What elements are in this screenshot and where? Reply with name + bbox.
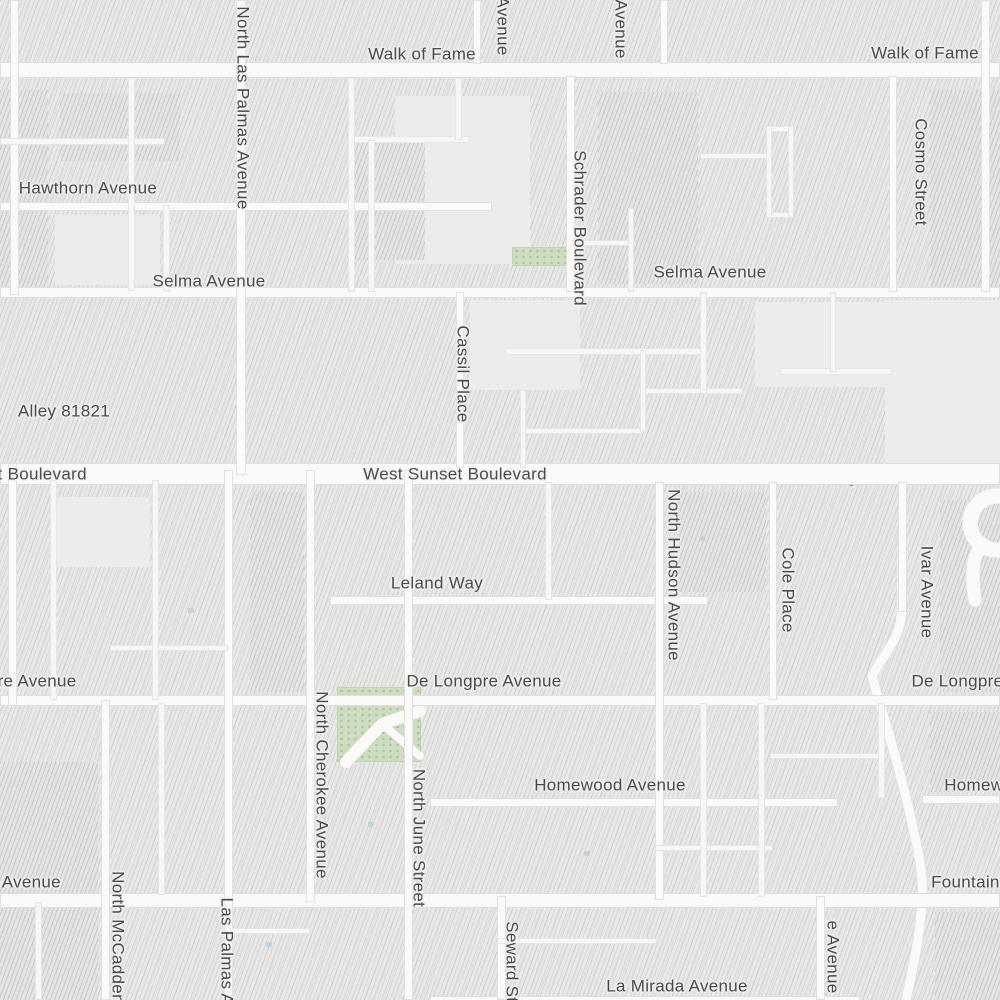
street-label-west-sunset-boulevard: West Sunset Boulevard (363, 466, 547, 483)
minor-road (230, 928, 310, 934)
street-label-selma-avenue-west: Selma Avenue (153, 273, 266, 290)
road-la-mirada-avenue (430, 996, 860, 1000)
minor-road (878, 703, 885, 798)
street-label-de-longpre-avenue-west-clipped: De Longpre Avenue (0, 673, 77, 690)
street-label-la-mirada-avenue: La Mirada Avenue (606, 978, 748, 995)
minor-road (110, 645, 228, 651)
road-avenue-partial-2 (660, 0, 668, 64)
swimming-pool (368, 822, 373, 827)
street-label-north-june-street: North June Street (411, 769, 428, 907)
minor-road (348, 78, 355, 292)
road-homewood-avenue (430, 798, 838, 807)
road-cul-de-sac-loop (970, 496, 1000, 550)
road-walk-of-fame (0, 62, 1000, 78)
street-label-de-longpre-avenue-east-clipped: De Longpre Avenue (911, 673, 1000, 690)
minor-road (770, 753, 880, 759)
street-label-e-avenue-partial: e Avenue (825, 921, 842, 994)
road-left-edge-mid (8, 463, 17, 706)
street-label-cosmo-street: Cosmo Street (913, 118, 930, 226)
street-label-avenue-partial-2: Avenue (613, 0, 630, 59)
road-selma-avenue (0, 287, 1000, 298)
street-label-north-las-palmas-avenue: North Las Palmas Avenue (235, 6, 252, 209)
minor-road (35, 902, 42, 1000)
minor-road (505, 348, 705, 355)
road-leland-way (330, 596, 708, 605)
street-label-north-cherokee-avenue: North Cherokee Avenue (314, 691, 331, 878)
minor-road (655, 845, 773, 851)
street-label-north-hudson-avenue: North Hudson Avenue (666, 489, 683, 661)
street-label-fountain-avenue-west-clipped: Fountain Avenue (0, 874, 61, 891)
minor-road (520, 428, 642, 434)
street-label-avenue-partial-1: Avenue (495, 0, 512, 56)
street-label-selma-avenue-east: Selma Avenue (654, 264, 767, 281)
minor-road (520, 390, 526, 468)
road-cole-place (769, 482, 777, 700)
road-north-june-street (404, 470, 413, 1000)
minor-road (50, 480, 57, 700)
swimming-pool (188, 608, 194, 613)
street-label-schrader-boulevard: Schrader Boulevard (572, 150, 589, 306)
street-label-leland-way: Leland Way (391, 575, 483, 592)
street-label-walk-of-fame-west: Walk of Fame (368, 46, 476, 63)
minor-road (628, 208, 634, 292)
street-label-hawthorn-avenue: Hawthorn Avenue (19, 180, 157, 197)
park-path-branch (382, 724, 420, 756)
road-de-longpre-avenue (0, 695, 1000, 706)
minor-road (455, 78, 462, 140)
minor-road (758, 703, 765, 897)
street-label-north-mccadden-place-clipped: North McCadden Place (110, 871, 127, 1000)
street-label-fountain-avenue-east-clipped: Fountain Avenue (931, 874, 1000, 891)
minor-road (638, 388, 743, 394)
road-cosmo-street (889, 76, 897, 292)
street-label-cassil-place: Cassil Place (455, 325, 472, 422)
street-label-walk-of-fame-east: Walk of Fame (871, 45, 979, 62)
minor-road (640, 350, 646, 432)
street-label-homewood-avenue: Homewood Avenue (534, 777, 686, 794)
map-vector-overlay (0, 0, 1000, 1000)
minor-road (780, 368, 892, 375)
street-label-de-longpre-avenue: De Longpre Avenue (406, 673, 561, 690)
minor-road (700, 703, 707, 897)
street-label-cole-place: Cole Place (780, 547, 797, 632)
minor-road (766, 126, 772, 218)
road-ivar-avenue-upper (898, 482, 907, 612)
minor-road (158, 703, 165, 895)
minor-road (368, 140, 375, 292)
street-label-homewood-avenue-east-clipped: Homewood Avenue (944, 777, 1000, 794)
minor-road (152, 480, 159, 700)
swimming-pool (584, 851, 590, 856)
street-label-west-sunset-boulevard-clipped: West Sunset Boulevard (0, 466, 87, 483)
street-label-las-palmas-avenue-south-clipped: Las Palmas Avenue (219, 897, 236, 1000)
minor-road (0, 138, 165, 145)
minor-road (545, 482, 552, 600)
swimming-pool (700, 536, 705, 541)
road-right-edge-north (981, 0, 990, 292)
street-label-seward-street-clipped: Seward Street (504, 921, 521, 1000)
road-north-hudson-avenue (655, 482, 664, 900)
minor-road (788, 126, 794, 218)
swimming-pool (266, 942, 272, 947)
road-homewood-avenue-east (922, 795, 1000, 804)
minor-road (700, 153, 772, 159)
street-label-alley-81821: Alley 81821 (18, 403, 110, 420)
street-label-ivar-avenue: Ivar Avenue (919, 546, 936, 639)
road-left-edge-north (10, 0, 19, 295)
minor-road (830, 292, 836, 372)
minor-road (700, 292, 707, 394)
map-canvas[interactable]: Hollywood Walk of FameWalk of FameHawtho… (0, 0, 1000, 1000)
